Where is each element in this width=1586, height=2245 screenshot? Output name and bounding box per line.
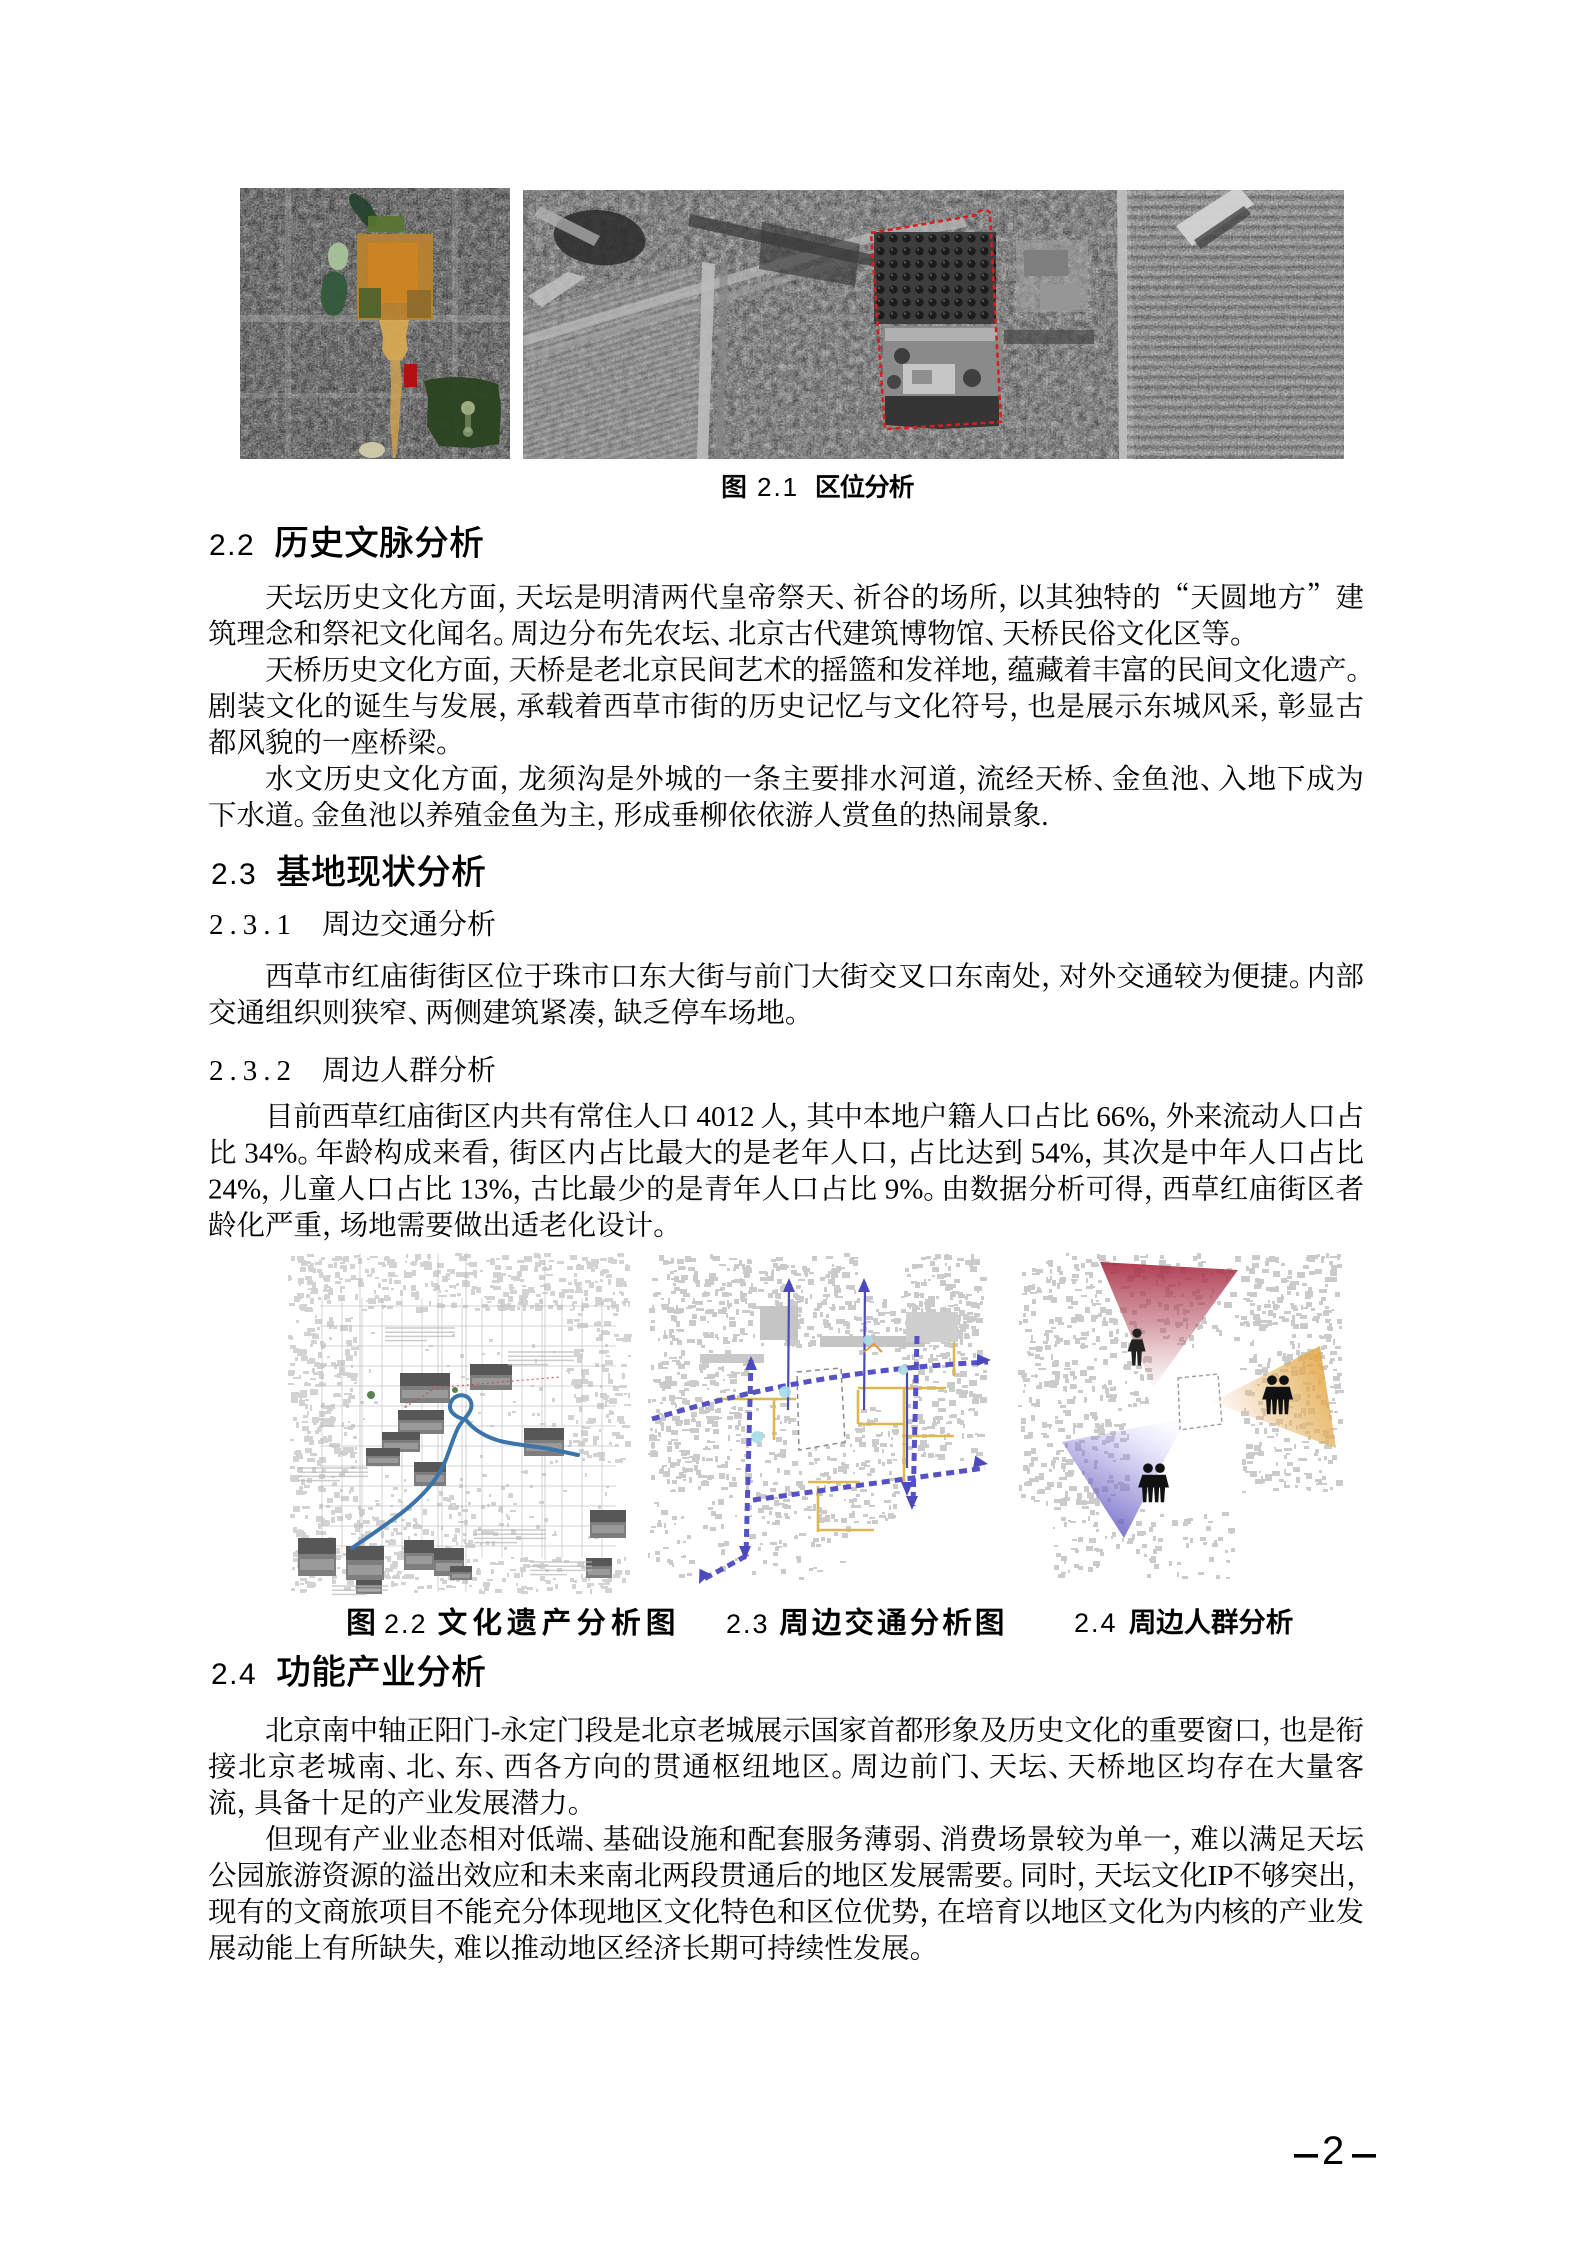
svg-text:2.1: 2.1 xyxy=(757,472,799,502)
svg-text:2.3: 2.3 xyxy=(211,858,257,891)
svg-text:2.4: 2.4 xyxy=(211,1658,257,1691)
svg-text:54%: 54% xyxy=(1031,1137,1084,1169)
svg-text:13%: 13% xyxy=(460,1174,513,1206)
svg-text:2.2: 2.2 xyxy=(209,529,255,562)
svg-text:2.3.2: 2.3.2 xyxy=(209,1055,297,1087)
svg-text:34%: 34% xyxy=(244,1137,297,1169)
svg-text:2.2: 2.2 xyxy=(384,1609,428,1639)
svg-text:.: . xyxy=(1041,800,1048,832)
svg-text:4012: 4012 xyxy=(697,1101,755,1133)
svg-text:9%: 9% xyxy=(885,1174,924,1206)
svg-text:2.3.1: 2.3.1 xyxy=(209,909,297,941)
svg-text:IP: IP xyxy=(1208,1860,1234,1892)
svg-text:66%: 66% xyxy=(1096,1101,1149,1133)
svg-text:24%: 24% xyxy=(208,1174,261,1206)
svg-text:-: - xyxy=(491,1715,501,1747)
svg-text:2: 2 xyxy=(1322,2129,1344,2173)
svg-text:2.3: 2.3 xyxy=(726,1609,770,1639)
svg-text:2.4: 2.4 xyxy=(1074,1608,1118,1638)
